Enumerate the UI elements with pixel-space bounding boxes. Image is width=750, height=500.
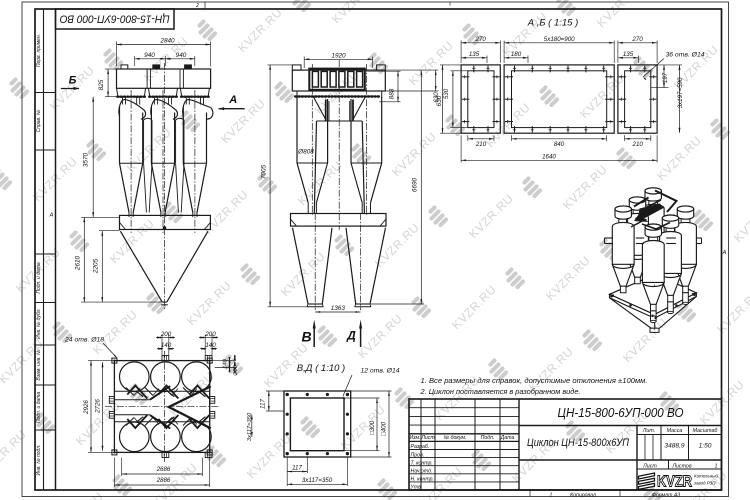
svg-text:Справ. №: Справ. № [36,109,42,132]
svg-text:Б: Б [69,75,77,87]
svg-text:117: 117 [292,464,302,471]
svg-text:Разраб.: Разраб. [411,444,430,450]
svg-text:завод РЗП: завод РЗП [693,481,716,486]
svg-text:KVZR: KVZR [657,474,692,491]
svg-text:□400: □400 [380,421,387,436]
svg-text:1. Все размеры для справок, до: 1. Все размеры для справок, допустимые о… [421,377,648,385]
svg-text:Листов: Листов [671,463,692,469]
svg-text:Циклон ЦН-15-800х6УП: Циклон ЦН-15-800х6УП [527,437,629,449]
svg-text:200: 200 [233,364,239,375]
svg-text:Д: Д [346,329,356,343]
svg-text:210: 210 [475,141,487,148]
svg-text:888: 888 [389,88,396,99]
svg-text:Дата: Дата [500,435,515,441]
svg-text:Подп. и дата: Подп. и дата [36,262,42,294]
svg-text:2610: 2610 [75,255,82,271]
svg-text:1640: 1640 [542,153,556,160]
svg-text:530: 530 [443,88,450,99]
svg-text:210: 210 [632,141,644,148]
svg-text:1920: 1920 [331,52,346,59]
svg-text:2: 2 [195,3,199,9]
svg-text:12 отв. Ø14: 12 отв. Ø14 [360,368,399,375]
svg-text:3х117=350: 3х117=350 [302,477,333,484]
svg-text:2886: 2886 [156,477,171,484]
svg-text:ЦН-15-800-6УП-000 ВО: ЦН-15-800-6УП-000 ВО [558,405,684,420]
svg-text:Пров.: Пров. [411,452,425,458]
svg-text:Инв. № подл.: Инв. № подл. [36,444,42,475]
svg-text:2. Циклон поставляется в разоб: 2. Циклон поставляется в разобранном вид… [419,388,580,396]
svg-text:270: 270 [631,36,643,43]
svg-text:2205: 2205 [93,258,100,274]
svg-text:36 отв. Ø14: 36 отв. Ø14 [665,52,704,59]
svg-text:140: 140 [205,342,216,349]
svg-text:840: 840 [554,141,565,148]
svg-text:5х180=900: 5х180=900 [544,36,575,43]
svg-text:825: 825 [98,79,105,90]
svg-text:Инв. № дубл.: Инв. № дубл. [36,308,42,339]
svg-text:180: 180 [511,51,522,58]
svg-text:Взам. инв. №: Взам. инв. № [36,349,42,381]
svg-text:200: 200 [160,331,172,338]
svg-text:140: 140 [161,342,172,349]
svg-text:Масштаб: Масштаб [693,428,719,434]
svg-text:№ докум.: № докум. [444,435,467,441]
svg-text:1:50: 1:50 [699,443,712,450]
svg-text:А ,Б ( 1:15 ): А ,Б ( 1:15 ) [527,18,579,29]
svg-text:А: А [49,213,54,219]
svg-text:Лист: Лист [420,435,435,441]
svg-text:3х197=590: 3х197=590 [677,77,684,108]
svg-text:3570: 3570 [83,152,90,167]
svg-text:1363: 1363 [331,305,346,312]
svg-text:197: 197 [662,72,669,83]
svg-text:2726: 2726 [94,399,101,414]
svg-text:7005: 7005 [260,164,267,179]
svg-text:Н. контр.: Н. контр. [411,477,434,483]
svg-text:Ø808: Ø808 [297,149,314,156]
svg-text:Нач.отд.: Нач.отд. [411,469,433,475]
svg-text:24 отв. Ø18: 24 отв. Ø18 [64,337,104,344]
svg-text:Лит.: Лит. [642,428,655,434]
svg-text:А: А [228,94,237,106]
svg-text:3488,9: 3488,9 [664,443,685,450]
svg-text:Подп.: Подп. [481,435,495,441]
svg-text:В: В [301,329,311,345]
svg-text:ЦН-15-800-6УП-000 ВО: ЦН-15-800-6УП-000 ВО [59,12,169,24]
svg-text:А: А [722,250,727,256]
svg-text:940: 940 [176,52,187,59]
svg-text:Изм.: Изм. [409,435,420,441]
svg-text:Котельный: Котельный [694,474,718,479]
svg-text:630: 630 [433,92,440,103]
svg-text:□300: □300 [369,420,376,435]
svg-text:135: 135 [623,51,634,58]
svg-text:Лист: Лист [642,463,657,469]
svg-text:1: 1 [715,463,718,469]
svg-text:Масса: Масса [667,428,683,434]
svg-text:200: 200 [204,331,216,338]
svg-text:1: 1 [550,493,553,499]
svg-text:Подп. и дата: Подп. и дата [36,392,42,424]
svg-text:3х117=350: 3х117=350 [247,412,253,441]
svg-text:135: 135 [469,51,480,58]
svg-text:2840: 2840 [159,38,175,45]
svg-text:Перв. примен.: Перв. примен. [36,34,42,67]
svg-text:940: 940 [144,52,155,59]
svg-text:Копировал: Копировал [570,493,596,499]
svg-text:В,Д ( 1:10 ): В,Д ( 1:10 ) [297,363,345,374]
svg-text:140: 140 [223,358,229,368]
svg-text:2926: 2926 [83,400,90,415]
svg-text:6690: 6690 [412,177,419,192]
svg-text:Утв.: Утв. [411,485,423,491]
svg-text:2686: 2686 [156,466,171,473]
svg-text:Т. контр.: Т. контр. [411,460,433,466]
svg-text:Формат А3: Формат А3 [652,493,680,499]
svg-text:117: 117 [259,399,266,409]
svg-text:270: 270 [475,36,487,43]
